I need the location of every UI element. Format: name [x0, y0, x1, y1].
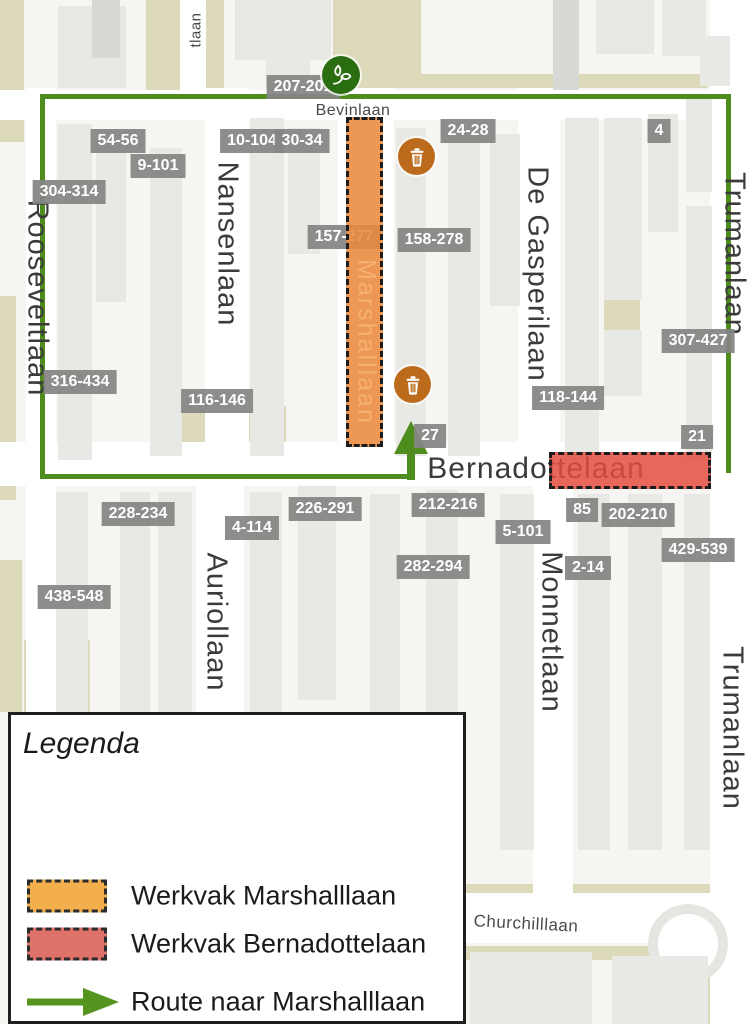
building-block: [470, 952, 592, 1024]
house-number-label: 202-210: [602, 503, 675, 527]
house-number-label: 4: [648, 119, 671, 143]
route-line-bottom: [40, 474, 412, 479]
building-block: [448, 124, 480, 456]
trash-icon: [398, 138, 435, 175]
house-number-label: 5-101: [496, 520, 551, 544]
leaf-icon: [322, 56, 360, 94]
house-number-label: 9-101: [131, 154, 186, 178]
street-name: Marshalllaan: [352, 259, 381, 425]
swatch-orange: [27, 880, 107, 913]
route-line-top: [40, 94, 731, 99]
building-block: [96, 130, 126, 302]
building-block: [490, 134, 520, 306]
street-name: Auriollaan: [200, 553, 233, 692]
building-block: [604, 330, 642, 396]
building-block: [628, 494, 662, 850]
building-block: [686, 96, 712, 192]
building-block: [612, 956, 708, 1024]
house-number-label: 158-278: [398, 228, 471, 252]
legend-item-label: Werkvak Bernadottelaan: [131, 929, 426, 960]
house-number-label: 54-56: [91, 129, 146, 153]
house-number-label: 118-144: [532, 386, 604, 410]
legend-item-werkvak-bernadottelaan: Werkvak Bernadottelaan: [11, 921, 463, 967]
building-block: [578, 494, 610, 850]
green-area: [0, 0, 24, 142]
street-name: Rooseveltlaan: [21, 200, 54, 397]
house-number-label: 4-114: [225, 516, 279, 540]
legend-item-label: Route naar Marshalllaan: [131, 987, 425, 1018]
street-name: tlaan: [188, 12, 205, 47]
building-block: [58, 124, 92, 460]
building-block: [553, 0, 579, 90]
building-block: [150, 148, 182, 456]
house-number-label: 316-434: [44, 370, 117, 394]
house-number-label: 30-34: [275, 129, 330, 153]
house-number-label: 85: [566, 498, 598, 522]
street-name: De Gasperilaan: [521, 166, 554, 382]
building-block: [396, 128, 426, 456]
route-arrow-stem: [407, 452, 415, 480]
house-number-label: 21: [681, 425, 713, 449]
house-number-label: 438-548: [38, 585, 111, 609]
street-name: Trumanlaan: [716, 646, 749, 810]
legend-item-label: Werkvak Marshalllaan: [131, 881, 396, 912]
legend-title: Legenda: [23, 727, 140, 761]
street-name: Nansenlaan: [211, 162, 244, 327]
swatch-red: [27, 928, 107, 961]
green-area: [0, 560, 22, 712]
building-block: [500, 494, 534, 850]
legend-item-route: Route naar Marshalllaan: [11, 979, 463, 1024]
house-number-label: 2-14: [565, 556, 611, 580]
house-number-label: 304-314: [33, 180, 106, 204]
house-number-label: 24-28: [441, 119, 496, 143]
street-name: Monnetlaan: [535, 551, 568, 713]
trash-icon: [394, 366, 431, 403]
building-block: [604, 118, 642, 300]
building-block: [250, 118, 284, 456]
house-number-label: 212-216: [412, 493, 485, 517]
building-block: [92, 0, 120, 58]
house-number-label: 226-291: [289, 497, 362, 521]
street-name: Trumanlaan: [718, 172, 750, 336]
house-number-label: 116-146: [181, 389, 253, 413]
legend: Legenda Werkvak Marshalllaan Werkvak Ber…: [8, 712, 466, 1024]
building-block: [596, 0, 654, 54]
building-block: [700, 36, 730, 86]
house-number-label: 27: [414, 424, 446, 448]
works-map: tlaanBevinlaanRooseveltlaanNansenlaanDe …: [0, 0, 750, 1024]
house-number-label: 282-294: [397, 555, 470, 579]
house-number-label: 429-539: [662, 538, 735, 562]
route-arrow-icon: [27, 999, 91, 1006]
werkvak-bernadottelaan-area: [549, 452, 711, 489]
house-number-label: 307-427: [662, 329, 735, 353]
house-number-label: 228-234: [102, 502, 175, 526]
legend-item-werkvak-marshalllaan: Werkvak Marshalllaan: [11, 873, 463, 919]
route-arrow-icon: [83, 988, 119, 1016]
